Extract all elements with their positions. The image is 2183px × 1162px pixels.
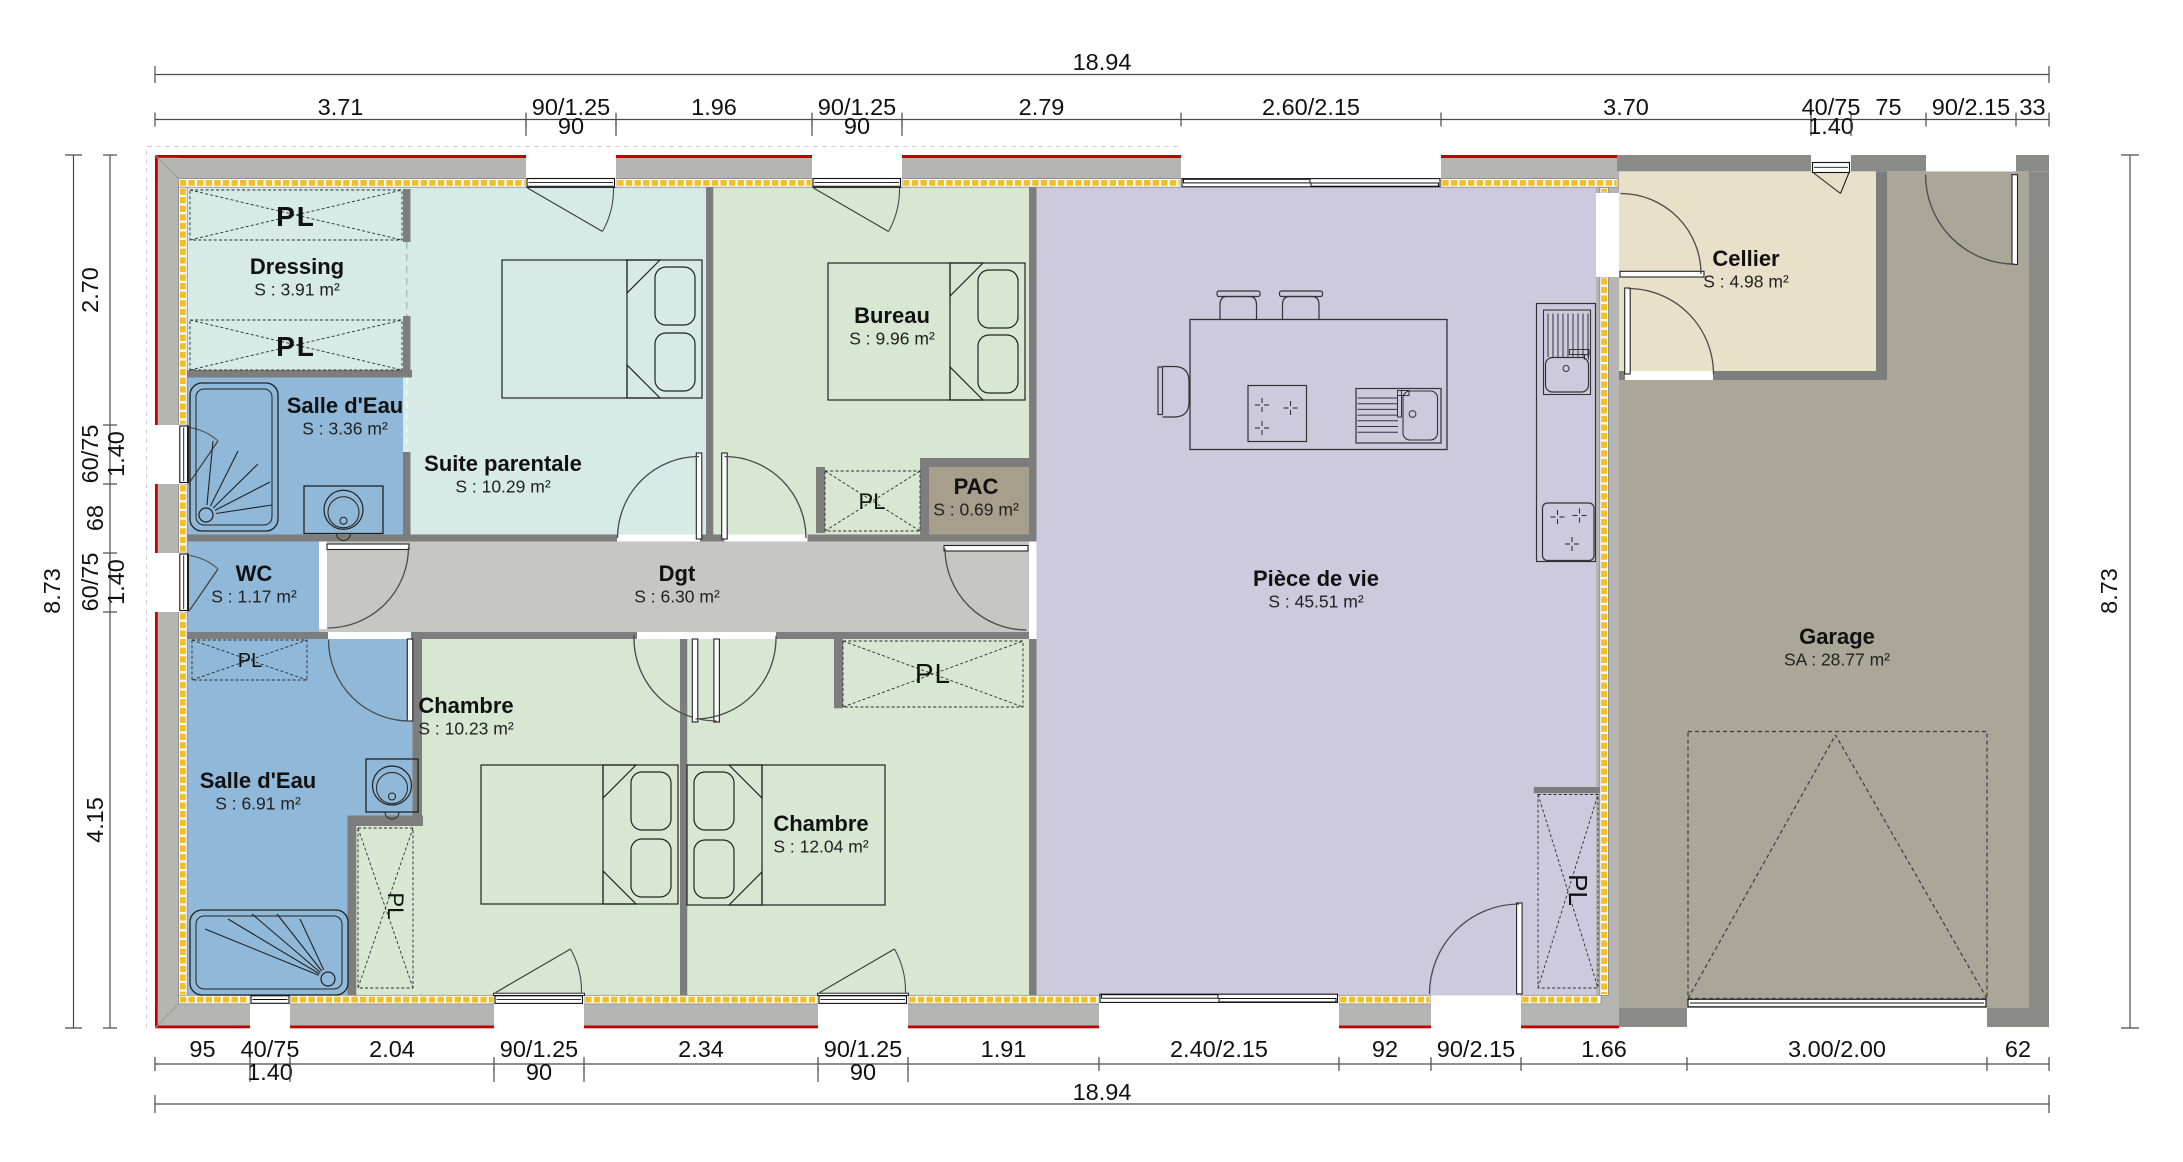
svg-text:S : 10.23 m²: S : 10.23 m² [418,719,513,739]
svg-text:1.40: 1.40 [103,431,129,477]
svg-text:Dgt: Dgt [659,561,696,586]
svg-text:S : 4.98 m²: S : 4.98 m² [1703,272,1789,292]
svg-text:68: 68 [82,505,108,531]
svg-text:90: 90 [558,113,584,139]
svg-text:S : 3.36 m²: S : 3.36 m² [302,419,388,439]
svg-text:3.70: 3.70 [1603,94,1649,120]
svg-text:3.71: 3.71 [318,94,364,120]
svg-text:S : 6.91 m²: S : 6.91 m² [215,794,301,814]
svg-text:1.96: 1.96 [691,94,737,120]
svg-text:S : 12.04 m²: S : 12.04 m² [773,837,868,857]
svg-text:2.04: 2.04 [369,1036,415,1062]
svg-text:18.94: 18.94 [1073,49,1132,75]
svg-text:PL: PL [915,658,951,689]
svg-text:75: 75 [1875,94,1901,120]
svg-text:S : 9.96 m²: S : 9.96 m² [849,329,935,349]
svg-text:1.40: 1.40 [247,1059,293,1085]
svg-text:1.40: 1.40 [103,559,129,605]
svg-text:Chambre: Chambre [773,811,868,836]
svg-text:4.15: 4.15 [82,797,108,843]
svg-text:1.91: 1.91 [981,1036,1027,1062]
svg-text:95: 95 [189,1036,215,1062]
svg-text:WC: WC [236,561,273,586]
svg-text:PL: PL [276,331,316,362]
svg-text:Chambre: Chambre [418,693,513,718]
svg-text:3.00/2.00: 3.00/2.00 [1788,1036,1886,1062]
svg-text:2.79: 2.79 [1019,94,1065,120]
svg-text:S : 1.17 m²: S : 1.17 m² [211,587,297,607]
svg-text:2.40/2.15: 2.40/2.15 [1170,1036,1268,1062]
svg-text:Salle d'Eau: Salle d'Eau [200,768,317,793]
svg-text:Cellier: Cellier [1712,246,1780,271]
svg-text:1.40: 1.40 [1808,113,1854,139]
svg-text:2.60/2.15: 2.60/2.15 [1262,94,1360,120]
svg-text:18.94: 18.94 [1073,1079,1132,1105]
svg-text:S : 0.69 m²: S : 0.69 m² [933,500,1019,520]
svg-text:Garage: Garage [1799,624,1875,649]
svg-text:Dressing: Dressing [250,254,344,279]
svg-text:PL: PL [383,893,408,920]
svg-text:33: 33 [2019,94,2045,120]
svg-text:S : 45.51 m²: S : 45.51 m² [1268,592,1363,612]
svg-text:S : 10.29 m²: S : 10.29 m² [455,477,550,497]
svg-text:Suite parentale: Suite parentale [424,451,582,476]
svg-text:2.70: 2.70 [77,267,103,313]
svg-text:Bureau: Bureau [854,303,930,328]
svg-text:S : 3.91 m²: S : 3.91 m² [254,280,340,300]
svg-text:1.66: 1.66 [1581,1036,1627,1062]
svg-text:PAC: PAC [954,474,999,499]
svg-text:60/75: 60/75 [77,553,103,612]
svg-text:8.73: 8.73 [39,568,65,614]
svg-text:PL: PL [276,201,316,232]
svg-text:62: 62 [2005,1036,2031,1062]
svg-text:Pièce de vie: Pièce de vie [1253,566,1379,591]
svg-text:8.73: 8.73 [2096,568,2122,614]
svg-text:PL: PL [859,489,886,514]
svg-text:90: 90 [526,1059,552,1085]
svg-text:Salle d'Eau: Salle d'Eau [287,393,404,418]
svg-text:PL: PL [238,650,262,672]
svg-text:90: 90 [844,113,870,139]
svg-text:PL: PL [1563,874,1593,906]
svg-text:2.34: 2.34 [678,1036,724,1062]
svg-text:92: 92 [1372,1036,1398,1062]
svg-text:90/2.15: 90/2.15 [1932,94,2010,120]
svg-text:90: 90 [850,1059,876,1085]
svg-text:60/75: 60/75 [77,425,103,484]
svg-text:90/2.15: 90/2.15 [1437,1036,1515,1062]
svg-text:SA : 28.77 m²: SA : 28.77 m² [1784,650,1890,670]
svg-text:S : 6.30 m²: S : 6.30 m² [634,587,720,607]
